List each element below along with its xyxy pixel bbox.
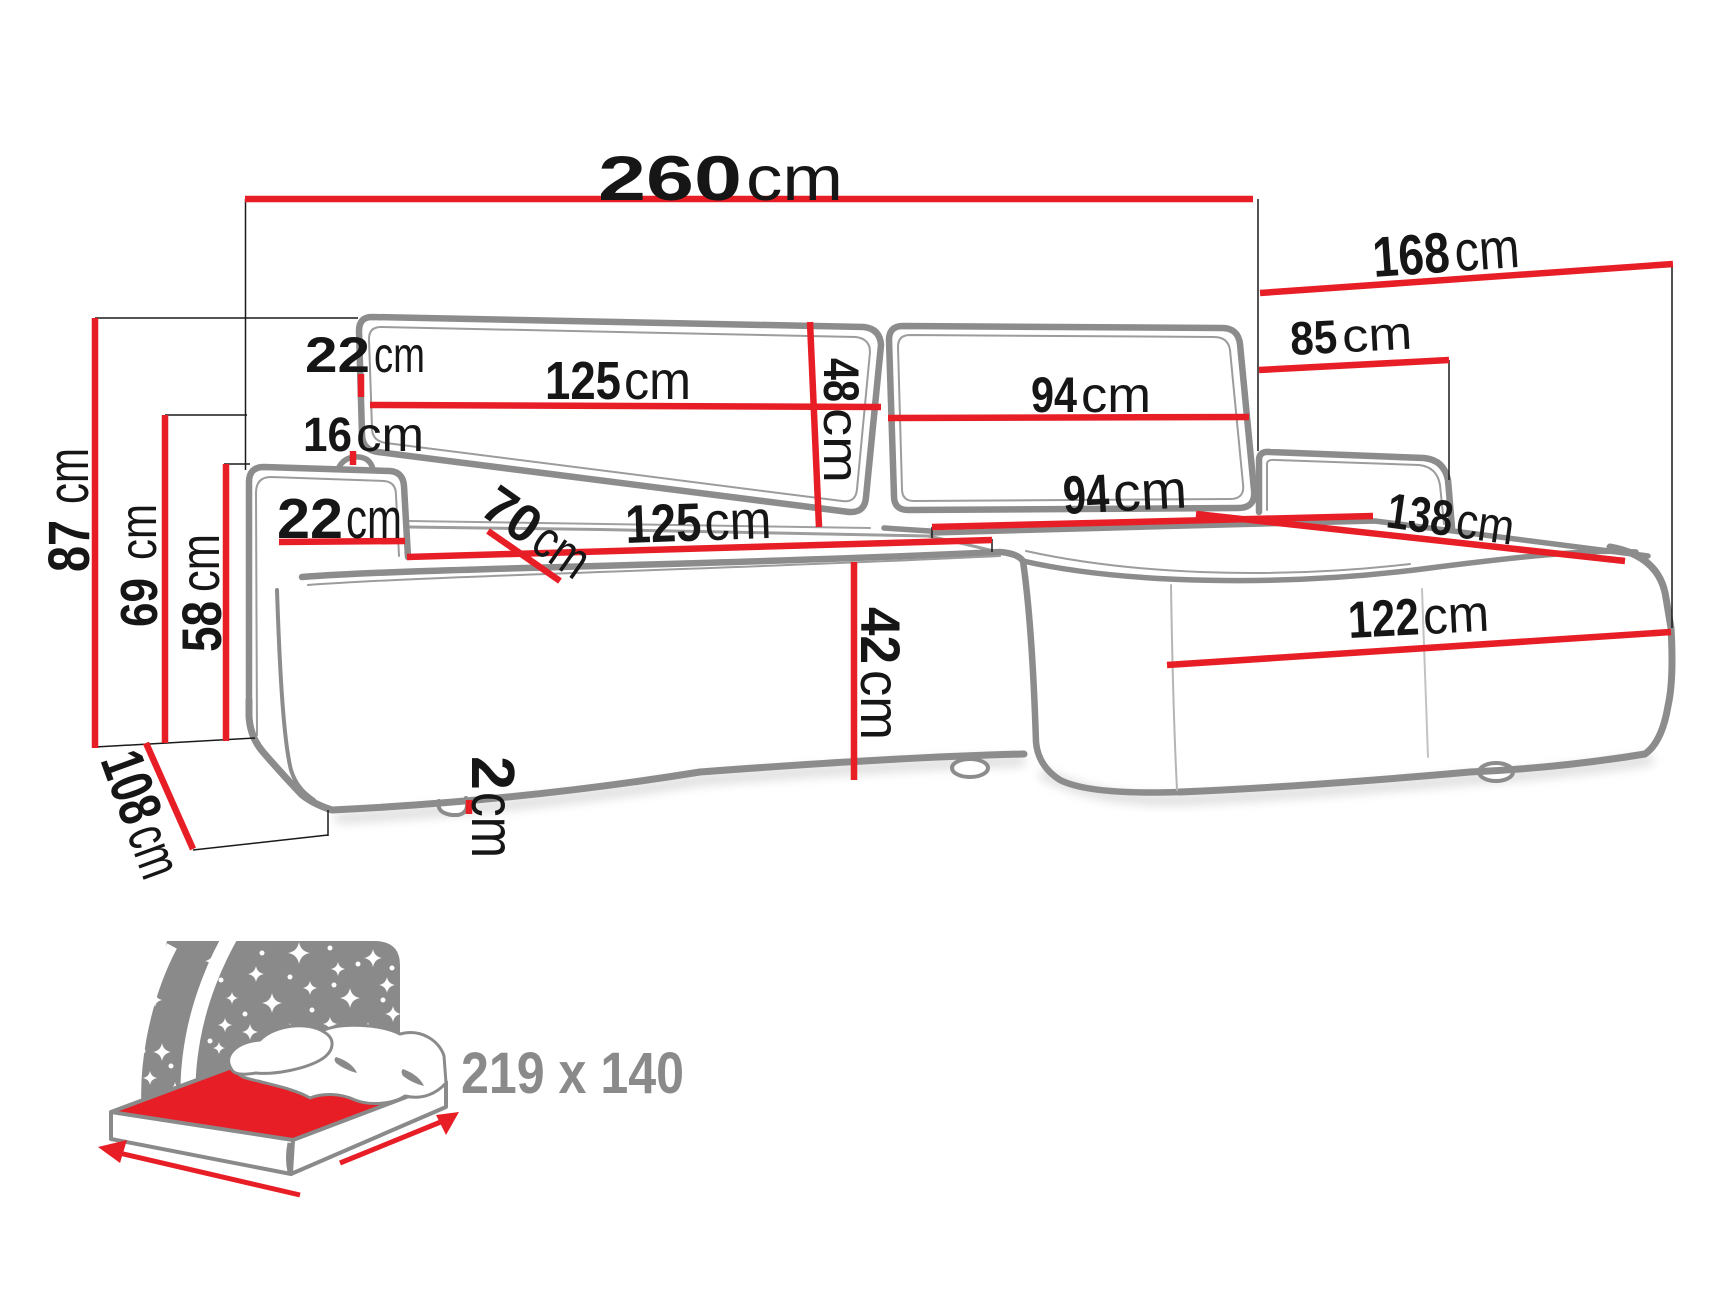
svg-text:125: 125 [624, 492, 702, 555]
svg-text:cm: cm [813, 408, 869, 483]
svg-text:cm: cm [346, 487, 402, 551]
svg-text:cm: cm [356, 409, 424, 462]
svg-text:cm: cm [1111, 460, 1188, 524]
svg-text:22: 22 [277, 487, 343, 551]
svg-text:16: 16 [303, 409, 352, 462]
svg-text:cm: cm [459, 792, 527, 858]
svg-text:138: 138 [1383, 482, 1456, 547]
svg-text:219 x 140: 219 x 140 [461, 1041, 684, 1106]
svg-text:22: 22 [305, 327, 370, 383]
svg-text:125: 125 [545, 351, 621, 411]
svg-text:cm: cm [624, 351, 691, 411]
svg-text:42: 42 [849, 607, 912, 664]
svg-text:94: 94 [1031, 367, 1077, 423]
svg-text:cm: cm [849, 670, 912, 740]
svg-text:2: 2 [459, 756, 527, 790]
svg-text:cm: cm [1453, 492, 1518, 556]
svg-text:cm: cm [168, 534, 231, 592]
svg-text:cm: cm [1421, 585, 1490, 646]
svg-text:260: 260 [598, 144, 742, 214]
svg-text:69: 69 [111, 578, 169, 627]
svg-text:cm: cm [1341, 306, 1414, 363]
svg-text:87: 87 [37, 520, 102, 572]
svg-text:cm: cm [746, 144, 843, 214]
svg-text:cm: cm [703, 490, 772, 552]
svg-text:168: 168 [1370, 221, 1451, 290]
svg-text:cm: cm [36, 448, 101, 504]
svg-text:94: 94 [1061, 464, 1110, 526]
svg-text:48: 48 [813, 358, 869, 402]
svg-text:122: 122 [1347, 588, 1421, 650]
svg-text:cm: cm [374, 327, 425, 383]
svg-text:cm: cm [110, 504, 168, 560]
svg-text:85: 85 [1289, 310, 1339, 365]
svg-text:58: 58 [170, 601, 233, 652]
svg-text:cm: cm [1452, 216, 1521, 284]
svg-text:cm: cm [1081, 367, 1151, 423]
